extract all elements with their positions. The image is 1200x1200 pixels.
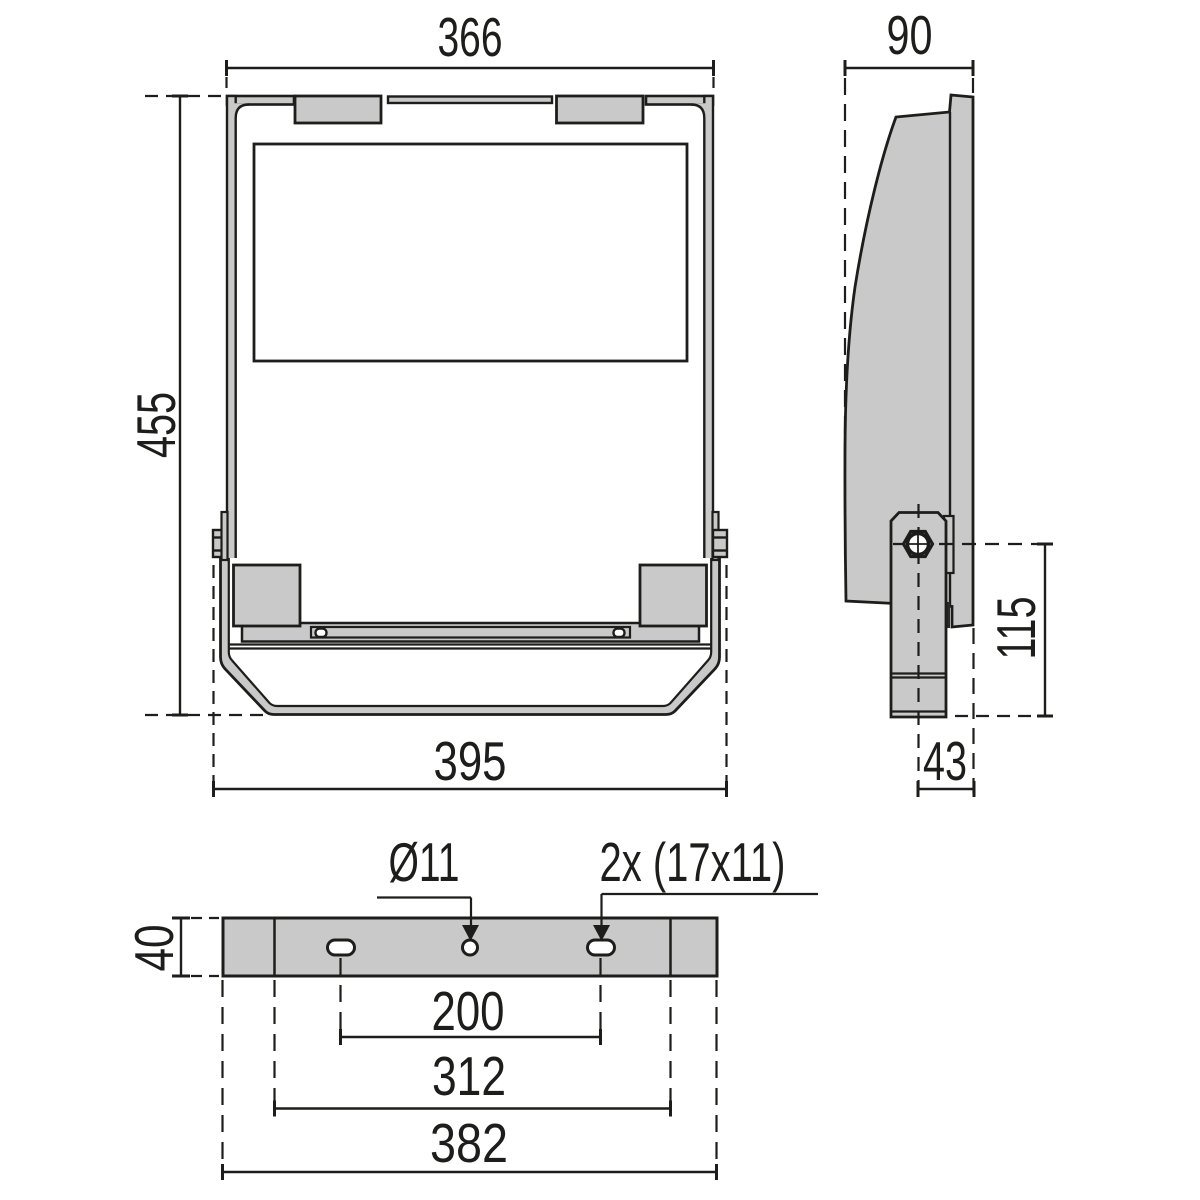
- svg-text:366: 366: [438, 6, 503, 68]
- svg-text:40: 40: [123, 925, 185, 972]
- svg-text:2x (17x11): 2x (17x11): [600, 831, 786, 893]
- svg-text:200: 200: [432, 980, 505, 1042]
- svg-text:115: 115: [985, 597, 1047, 660]
- svg-text:382: 382: [430, 1112, 508, 1174]
- svg-text:312: 312: [432, 1045, 506, 1107]
- svg-text:Ø11: Ø11: [389, 831, 460, 893]
- svg-text:43: 43: [923, 730, 967, 792]
- svg-text:90: 90: [887, 4, 933, 66]
- svg-text:455: 455: [125, 392, 187, 458]
- svg-text:395: 395: [434, 730, 507, 792]
